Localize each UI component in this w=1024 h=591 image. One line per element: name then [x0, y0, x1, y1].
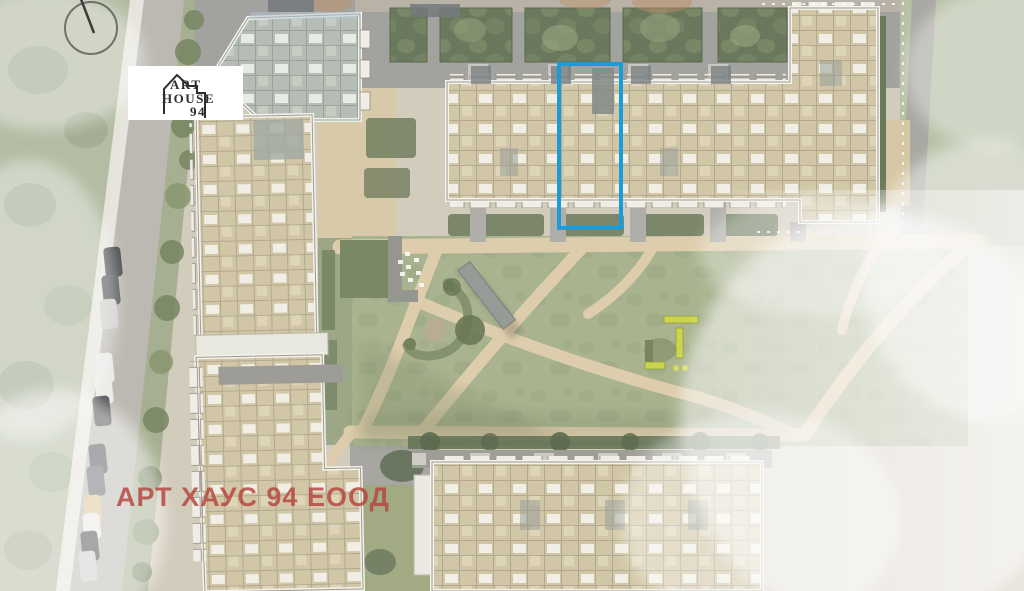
arthouse-logo: ART HOUSE 94	[128, 66, 243, 120]
site-plan-view: ART HOUSE 94 АРТ ХАУС 94 ЕООД	[0, 0, 1024, 591]
logo-text-94: 94	[190, 105, 206, 118]
company-watermark: АРТ ХАУС 94 ЕООД	[116, 482, 390, 513]
logo-text-house: HOUSE	[162, 92, 215, 105]
selected-unit-highlight[interactable]	[557, 62, 623, 230]
logo-text-art: ART	[170, 78, 202, 91]
